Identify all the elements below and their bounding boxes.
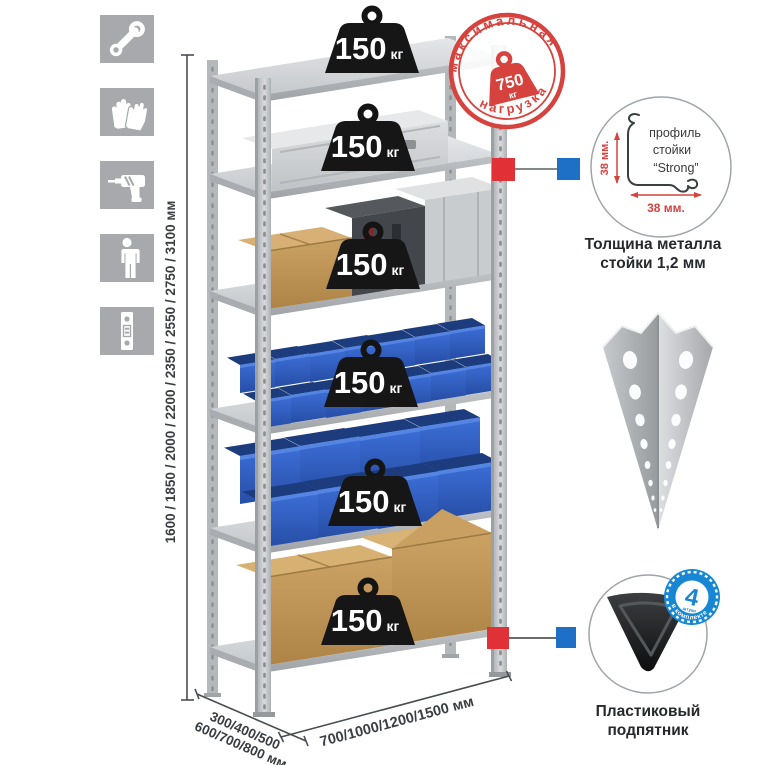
metal-thickness-caption: Толщина металла стойки 1,2 мм bbox=[585, 236, 722, 272]
foot-caption: Пластиковый подпятник bbox=[596, 703, 701, 739]
svg-text:Толщина металла: Толщина металла bbox=[585, 236, 722, 253]
callout-marker-blue-top bbox=[557, 158, 580, 180]
profile-detail-circle: 38 мм. 38 мм. профиль стойки “Strong” bbox=[591, 97, 731, 237]
depth-dimension: 300/400/500 600/700/800 мм bbox=[192, 689, 308, 765]
callout-foot bbox=[487, 627, 576, 649]
svg-text:1600 / 1850 / 2000 / 2200 / 23: 1600 / 1850 / 2000 / 2200 / 2350 / 2550 … bbox=[163, 201, 178, 544]
svg-text:“Strong”: “Strong” bbox=[653, 161, 698, 175]
svg-text:профиль: профиль bbox=[649, 126, 701, 140]
callout-marker-blue-bottom bbox=[556, 627, 576, 648]
svg-text:подпятник: подпятник bbox=[607, 722, 688, 739]
width-dimension: 700/1000/1200/1500 мм bbox=[279, 671, 512, 750]
angle-post-photo bbox=[603, 313, 713, 530]
callout-profile bbox=[492, 158, 580, 181]
callout-marker-red-top bbox=[492, 158, 515, 181]
svg-text:стойки: стойки bbox=[653, 143, 691, 157]
svg-text:стойки 1,2 мм: стойки 1,2 мм bbox=[600, 255, 705, 272]
svg-text:38 мм.: 38 мм. bbox=[599, 141, 611, 176]
shelving-infographic: 150кг 150кг 150кг 150кг 150кг 150кг макс… bbox=[0, 0, 765, 765]
svg-text:700/1000/1200/1500 мм: 700/1000/1200/1500 мм bbox=[318, 694, 475, 750]
height-dimension: 1600 / 1850 / 2000 / 2200 / 2350 / 2550 … bbox=[163, 55, 194, 700]
svg-text:38 мм.: 38 мм. bbox=[647, 201, 685, 215]
callout-marker-red-bottom bbox=[487, 627, 509, 649]
svg-text:Пластиковый: Пластиковый bbox=[596, 703, 701, 720]
load-badge-1: 150кг bbox=[325, 9, 419, 74]
